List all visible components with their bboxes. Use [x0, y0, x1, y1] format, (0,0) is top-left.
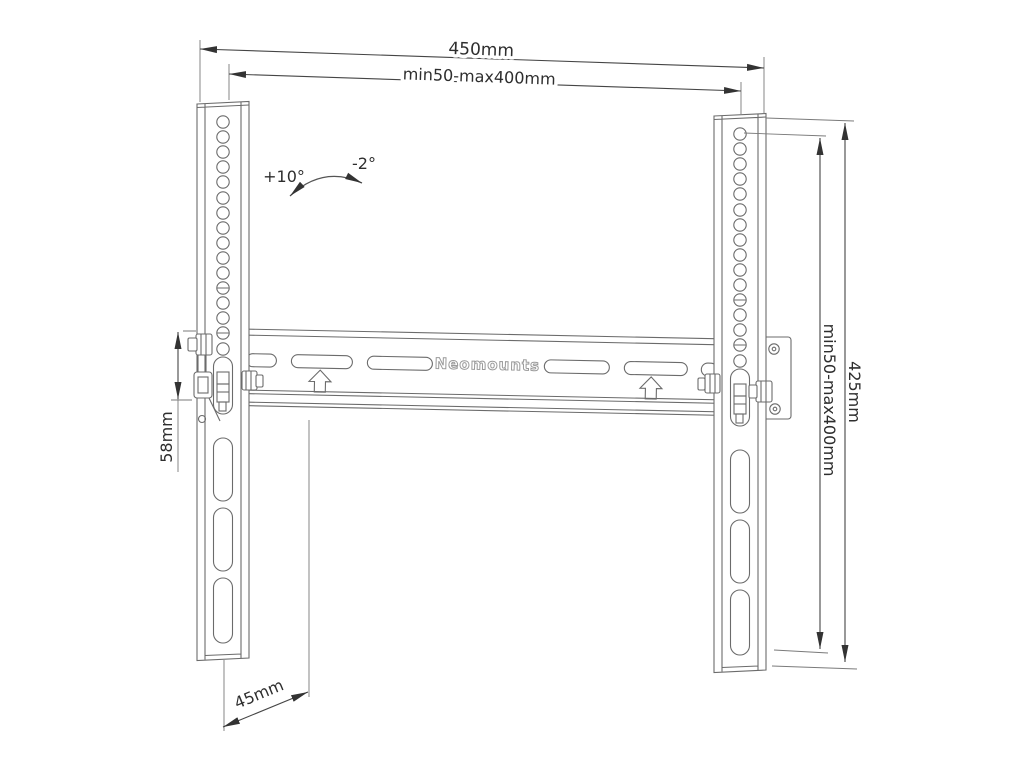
orientation-up-arrow-icon	[309, 370, 331, 392]
dimension-hole-pattern-width: min50-max400mm	[229, 64, 741, 114]
left-clamp-bolt	[242, 371, 263, 390]
hole-pattern-width-label: min50-max400mm	[402, 64, 555, 88]
right-clamp-bolt	[698, 374, 720, 393]
wall-depth-label: 45mm	[231, 675, 286, 712]
wall-mount-drawing: Neomounts	[0, 0, 1024, 768]
tilt-down-label: -2°	[352, 154, 376, 173]
plate-height-label: 58mm	[157, 411, 176, 463]
hole-pattern-height-label: min50-max400mm	[820, 324, 839, 477]
wall-plate: Neomounts	[240, 329, 779, 417]
orientation-up-arrow-icon	[640, 377, 662, 399]
tilt-annotation: +10° -2°	[263, 154, 376, 196]
dimension-plate-height: 58mm	[157, 331, 196, 472]
rail-height-label: 425mm	[845, 361, 864, 423]
tilt-up-label: +10°	[263, 167, 305, 186]
product-diagram: Neomounts	[0, 0, 1024, 768]
overall-width-label: 450mm	[448, 39, 514, 61]
brand-label: Neomounts	[434, 354, 540, 374]
